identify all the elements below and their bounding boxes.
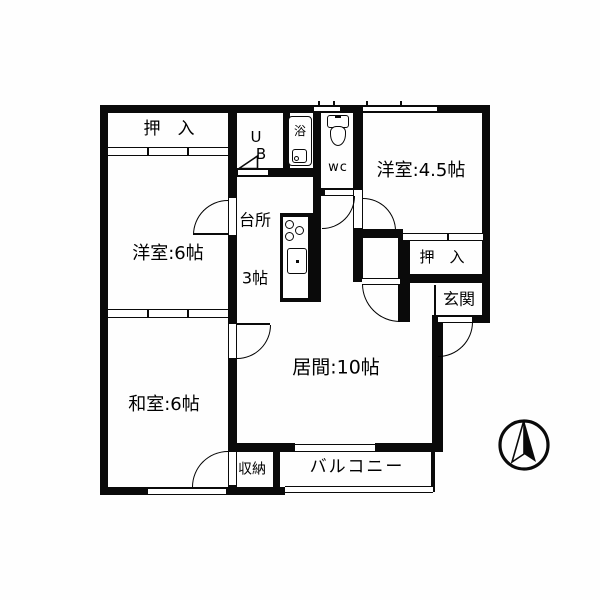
bathtub-drain xyxy=(294,156,299,161)
sliding-door-tick xyxy=(187,147,189,156)
label-kitchen-line1: 台所 xyxy=(239,211,271,230)
window-top-wc xyxy=(314,106,340,112)
japanese6-door-opening xyxy=(228,324,237,358)
stove-burners-icon xyxy=(285,220,294,229)
door-arc-western45 xyxy=(363,198,396,231)
stove-burners-icon xyxy=(295,226,304,235)
label-closet-top-left: 押 入 xyxy=(144,119,195,139)
label-western-room-45: 洋室:4.5帖 xyxy=(377,160,466,182)
label-ub-b: B xyxy=(256,145,266,163)
window-top-western45 xyxy=(363,106,437,112)
sliding-door-tick xyxy=(187,309,189,318)
sliding-door-tick xyxy=(447,233,449,241)
label-living-room: 居間:10帖 xyxy=(292,357,380,380)
entrance-step-line xyxy=(434,285,436,317)
label-wc: wc xyxy=(328,160,348,176)
window-tick xyxy=(366,101,368,106)
floor-plan: 押 入 洋室:6帖 和室:6帖 U B 浴 wc 洋室:4.5帖 押 入 玄関 … xyxy=(0,0,600,600)
label-balcony: バルコニー xyxy=(310,457,405,477)
door-arc-western6 xyxy=(193,200,228,235)
door-arc-living xyxy=(362,284,400,322)
wall-closet-right-bottom xyxy=(398,274,483,283)
toilet-bowl xyxy=(330,126,346,146)
door-leaf-western6 xyxy=(193,233,229,235)
window-tick xyxy=(333,101,335,106)
toilet-tank-line xyxy=(335,115,341,118)
label-closet-right: 押 入 xyxy=(419,248,464,266)
stove-burners-icon xyxy=(285,232,294,241)
sliding-door-western6-japanese6 xyxy=(108,309,228,318)
wall-storage-right xyxy=(273,443,280,492)
label-ub-u: U xyxy=(251,128,262,146)
sliding-door-closet-right xyxy=(403,233,483,241)
sliding-door-tick xyxy=(147,147,149,156)
label-kitchen-line2: 3帖 xyxy=(239,268,271,287)
door-leaf-western45 xyxy=(363,229,397,231)
window-bottom-japanese6 xyxy=(148,488,226,495)
label-bath: 浴 xyxy=(294,124,306,138)
wall-outer-left xyxy=(100,105,108,495)
door-arc-wc xyxy=(322,196,355,229)
door-arc-storage xyxy=(192,451,228,487)
wall-outer-right-upper xyxy=(482,105,490,323)
balcony-bottom-edge xyxy=(285,486,433,493)
compass-north-icon xyxy=(496,417,554,475)
label-storage: 収納 xyxy=(238,462,266,479)
door-arc-japanese6 xyxy=(237,325,271,359)
sliding-door-closet-top-left xyxy=(108,147,228,156)
western6-door-opening xyxy=(228,198,237,235)
label-entrance: 玄関 xyxy=(443,289,475,308)
balcony-window xyxy=(295,444,375,452)
window-tick xyxy=(318,101,320,106)
storage-door-opening xyxy=(228,452,237,485)
label-kitchen: 台所 3帖 xyxy=(239,172,271,326)
wall-living-south-west xyxy=(228,443,295,452)
label-japanese-room-6: 和室:6帖 xyxy=(128,394,200,416)
kitchen-faucet-dot xyxy=(296,260,299,263)
wall-living-south-east xyxy=(375,443,437,452)
window-tick xyxy=(400,101,402,106)
wc-door-opening xyxy=(325,189,353,196)
sliding-door-tick xyxy=(147,309,149,318)
door-arc-entrance xyxy=(438,322,473,357)
label-western-room-6: 洋室:6帖 xyxy=(132,243,204,265)
